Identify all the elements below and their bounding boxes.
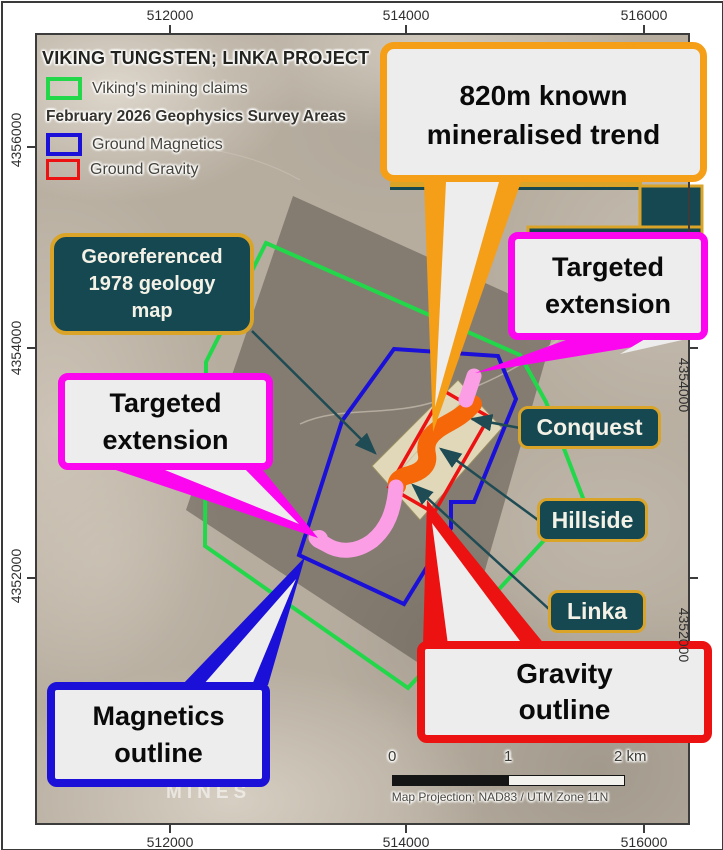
place-label-conquest: Conquest (518, 406, 661, 449)
targeted-right-line-1: Targeted (552, 249, 664, 286)
callout-targeted-extension-right: Targeted extension (508, 232, 708, 340)
axis-left-4354000: 4354000 (8, 308, 24, 388)
targeted-right-line-2: extension (545, 286, 671, 323)
axis-bottom-516000: 516000 (604, 834, 684, 850)
axis-top-516000: 516000 (604, 7, 684, 23)
magnetics-callout-line-2: outline (114, 735, 203, 772)
axis-bottom-514000: 514000 (366, 834, 446, 850)
trend-callout-line-2: mineralised trend (427, 115, 660, 154)
axis-right-4352000: 4352000 (676, 595, 692, 675)
callout-targeted-extension-left: Targeted extension (58, 373, 273, 470)
targeted-left-line-2: extension (102, 422, 228, 459)
axis-bottom-512000: 512000 (130, 834, 210, 850)
georef-label-box: Georeferenced 1978 geology map (50, 233, 254, 335)
georef-line-1: Georeferenced (81, 244, 222, 271)
axis-left-4352000: 4352000 (8, 536, 24, 616)
axis-right-4354000: 4354000 (676, 345, 692, 425)
map-figure: VIKING TUNGSTEN; LINKA PROJECT Viking's … (0, 0, 723, 850)
axis-left-4356000: 4356000 (8, 100, 24, 180)
gravity-callout-notch (432, 523, 523, 645)
axis-top-512000: 512000 (130, 7, 210, 23)
targeted-left-line-1: Targeted (109, 385, 221, 422)
gravity-callout-line-2: outline (519, 692, 611, 728)
georef-line-3: map (131, 298, 172, 325)
callout-gravity-outline: Gravity outline (417, 641, 712, 743)
callout-820m-trend: 820m known mineralised trend (380, 42, 707, 182)
magnetics-callout-line-1: Magnetics (92, 698, 224, 735)
place-label-linka: Linka (548, 590, 646, 633)
place-label-hillside: Hillside (537, 498, 648, 542)
axis-top-514000: 514000 (366, 7, 446, 23)
georef-line-2: 1978 geology (89, 271, 216, 298)
gravity-callout-line-1: Gravity (516, 656, 613, 692)
trend-callout-line-1: 820m known (459, 76, 627, 115)
callout-magnetics-outline: Magnetics outline (47, 682, 270, 787)
